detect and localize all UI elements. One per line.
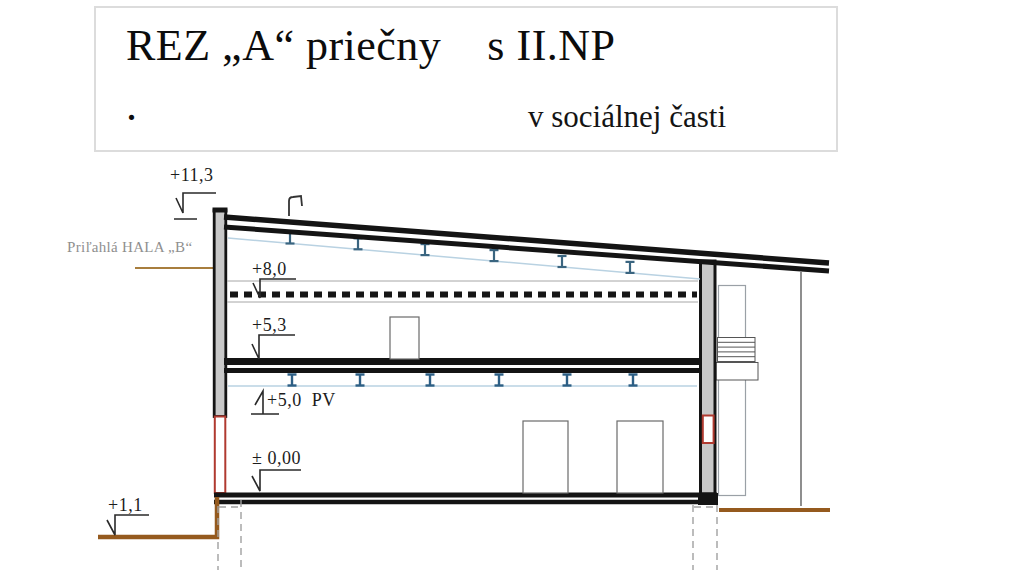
- ceiling-8-0: [227, 281, 698, 302]
- left-wall-opening: [215, 417, 226, 494]
- upper-floor-door: [390, 317, 419, 359]
- right-wall-opening: [703, 416, 714, 444]
- annex-elevation: [716, 272, 801, 506]
- left-wall-cap: [213, 208, 228, 213]
- elevation-label-5-0-pv: +5,0 PV: [267, 390, 336, 411]
- ground-slab: [214, 495, 717, 502]
- level-marker-1-1: [107, 515, 149, 535]
- adjacent-hall-label: Priľahlá HALA „B“: [67, 239, 192, 256]
- left-wall: [213, 208, 228, 494]
- drawing-title: REZ „A“ priečny s II.NP: [126, 22, 616, 70]
- roof: [224, 217, 829, 271]
- stair-shaft: [719, 286, 746, 496]
- floor-beams: [288, 375, 638, 386]
- elevation-label-0-00: ± 0,00: [252, 448, 301, 469]
- elevation-label-1-1: +1,1: [108, 495, 143, 516]
- level-marker-5-3: [252, 335, 295, 359]
- floor-5-3: [224, 362, 699, 387]
- stairs: [718, 338, 756, 362]
- title-dot: .: [126, 80, 137, 131]
- right-wall: [698, 261, 718, 505]
- section-drawing-slide: REZ „A“ priečny s II.NP . v sociálnej ča…: [0, 0, 1011, 570]
- elevation-label-8-0: +8,0: [252, 259, 287, 280]
- elevation-label-11-3: +11,3: [170, 165, 213, 186]
- foundation-dashes: [218, 500, 717, 570]
- ground-floor-door-1: [523, 421, 568, 493]
- roof-vent-pipe: [289, 196, 302, 216]
- stair-landing: [716, 363, 758, 381]
- roof-structure: [224, 196, 829, 279]
- level-marker-0-00: [252, 470, 301, 491]
- title-block: REZ „A“ priečny s II.NP . v sociálnej ča…: [94, 6, 838, 152]
- level-marker-11-3: [174, 193, 216, 219]
- elevation-label-5-3: +5,3: [252, 315, 287, 336]
- ground-floor-door-2: [617, 421, 663, 493]
- drawing-subtitle: v sociálnej časti: [528, 99, 726, 135]
